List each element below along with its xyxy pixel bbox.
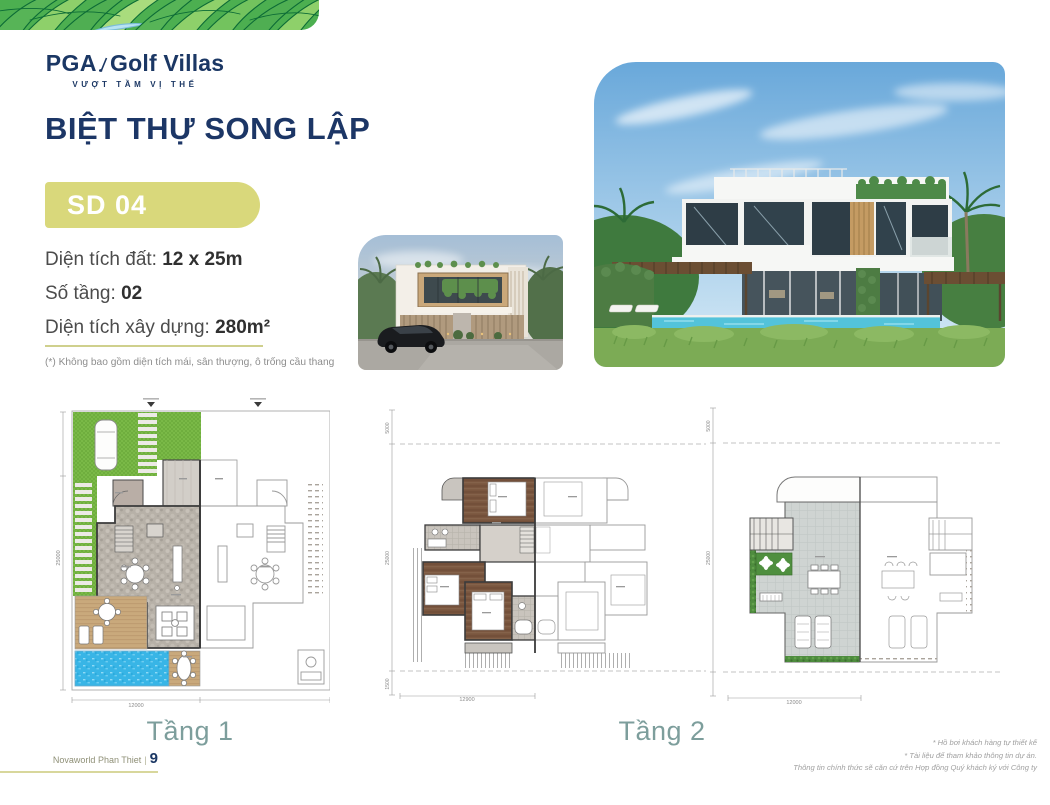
plan3-depth-dim: 25000	[706, 551, 712, 565]
plan1-width-dim: 12000	[128, 703, 143, 709]
spec-floors: Số tầng: 02	[45, 277, 270, 311]
brand-logo: PGA Golf Villas VƯỢT TẦM VỊ THẾ	[45, 50, 225, 89]
entrance-arrow-icon	[143, 398, 266, 407]
spec-value: 12 x 25m	[162, 249, 242, 270]
footer-page-info: Novaworld Phan Thiet|9	[0, 750, 158, 773]
floor2-label: Tầng 2	[602, 716, 722, 747]
plan3-width-dim: 12000	[786, 700, 801, 706]
disclaimer-line: Thông tin chính thức sẽ căn cứ trên Hợp …	[793, 762, 1037, 775]
floor-plan-roof: 5000 25000 12000	[703, 398, 1005, 708]
brand-suffix: Golf Villas	[110, 50, 224, 77]
page-title: BIỆT THỰ SONG LẬP	[45, 111, 370, 147]
brand-tagline: VƯỢT TẦM VỊ THẾ	[45, 80, 225, 89]
villa-photo-main	[594, 62, 1005, 367]
disclaimer-line: * Hồ bơi khách hàng tự thiết kế	[793, 737, 1037, 750]
leaf-decoration-banner	[0, 0, 319, 30]
spec-label: Diện tích xây dựng:	[45, 317, 215, 338]
spec-value: 280m²	[215, 317, 270, 338]
plan2-depth-dim: 25000	[385, 551, 391, 565]
spec-label: Diện tích đất:	[45, 249, 162, 270]
brochure-page: PGA Golf Villas VƯỢT TẦM VỊ THẾ BIỆT THỰ…	[0, 0, 1050, 805]
plan2-front-setback-dim: 5000	[385, 422, 391, 433]
floor-plan-1: 25000 12000	[55, 398, 330, 710]
spec-built-area: Diện tích xây dựng: 280m²	[45, 311, 270, 345]
spec-label: Số tầng:	[45, 283, 121, 304]
model-badge: SD 04	[45, 182, 260, 228]
spec-footnote: (*) Không bao gồm diện tích mái, sân thư…	[45, 357, 334, 368]
floor1-label: Tầng 1	[130, 716, 250, 747]
plan2-width-dim: 12900	[459, 697, 474, 702]
disclaimer-line: * Tài liệu để tham khảo thông tin dự án.	[793, 750, 1037, 763]
footer-separator: |	[144, 755, 146, 765]
villa-photo-street-view	[358, 235, 563, 370]
footer-disclaimers: * Hồ bơi khách hàng tự thiết kế * Tài li…	[793, 737, 1037, 775]
spec-list: Diện tích đất: 12 x 25m Số tầng: 02 Diện…	[45, 243, 270, 345]
floor-plan-2: 5000 25000 1500 12900	[380, 400, 710, 702]
parked-car-symbol	[95, 420, 117, 470]
golf-club-icon	[99, 57, 108, 78]
spec-value: 02	[121, 283, 142, 304]
spec-land-area: Diện tích đất: 12 x 25m	[45, 243, 270, 277]
plan1-depth-dim: 25000	[56, 550, 62, 565]
footer-page-number: 9	[150, 750, 158, 767]
brand-name: PGA	[46, 50, 97, 77]
plan2-rear-setback-dim: 1500	[385, 678, 391, 689]
footer-project-name: Novaworld Phan Thiet	[53, 755, 141, 765]
plan3-front-setback-dim: 5000	[706, 420, 712, 431]
divider-line	[45, 345, 263, 347]
